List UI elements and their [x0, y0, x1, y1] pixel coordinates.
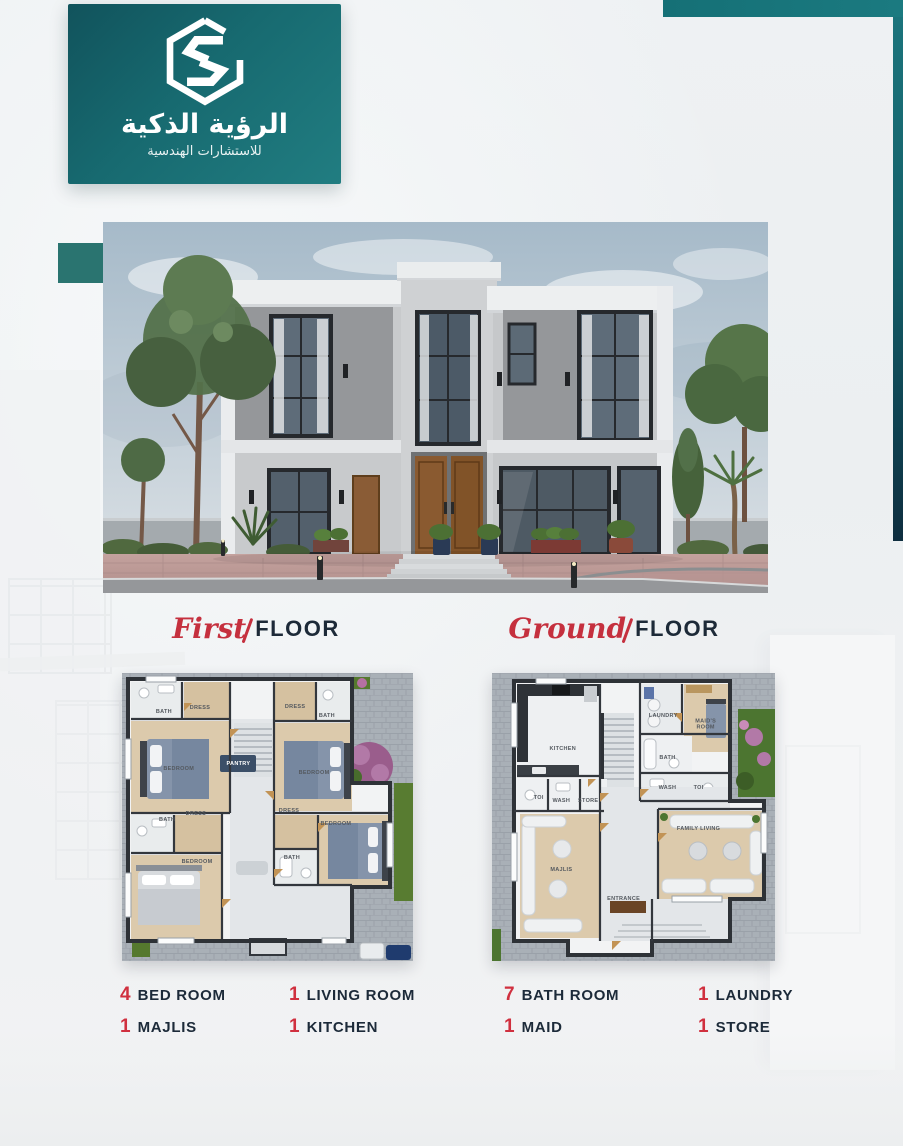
- room-label: STORE: [578, 798, 598, 804]
- stat-label: KITCHEN: [307, 1019, 379, 1036]
- stat-label: STORE: [716, 1019, 771, 1036]
- stat-label: MAJLIS: [138, 1019, 197, 1036]
- stat-count: 7: [504, 984, 515, 1006]
- stat-label: BED ROOM: [138, 987, 226, 1004]
- first-floor-title: FirstFLOOR: [106, 612, 406, 645]
- room-label: TOI: [534, 795, 544, 801]
- stat-store: 1 STORE: [698, 1016, 798, 1038]
- room-label: BEDROOM: [299, 770, 330, 776]
- first-floor-plan: BATH DRESS BEDROOM DRESS BATH BEDROOM PA…: [122, 673, 413, 961]
- hexagon-s-logo-icon: [153, 14, 257, 108]
- room-label: LAUNDRY: [649, 713, 678, 719]
- ground-floor-script: Ground: [508, 612, 626, 645]
- ground-floor-plan-drawing: [492, 673, 775, 961]
- top-accent-bar: [663, 0, 903, 17]
- stat-label: LAUNDRY: [716, 987, 794, 1004]
- right-accent-strip: [893, 17, 903, 541]
- summary-stats: 4 BED ROOM 1 LIVING ROOM 7 BATH ROOM 1 L…: [120, 984, 798, 1038]
- brand-subtitle-arabic: للاستشارات الهندسية: [147, 144, 261, 159]
- room-label: BEDROOM: [320, 821, 351, 827]
- stat-maid: 1 MAID: [504, 1016, 698, 1038]
- ground-floor-plan: KITCHEN LAUNDRY MAID'S ROOM BATH WASH TO…: [492, 673, 775, 961]
- room-label: WASH: [552, 798, 570, 804]
- room-label: BATH: [659, 755, 675, 761]
- stat-majlis: 1 MAJLIS: [120, 1016, 289, 1038]
- room-label: BEDROOM: [182, 859, 213, 865]
- room-label: DRESS: [285, 704, 305, 710]
- stat-count: 1: [289, 1016, 300, 1038]
- room-label: PANTRY: [226, 761, 250, 767]
- ground-floor-title: GroundFLOOR: [464, 612, 764, 645]
- room-label: MAID'S ROOM: [689, 718, 723, 731]
- stat-bedroom: 4 BED ROOM: [120, 984, 289, 1006]
- room-label: DRESS: [186, 811, 206, 817]
- stat-count: 1: [289, 984, 300, 1006]
- room-label: DRESS: [190, 705, 210, 711]
- stat-count: 1: [698, 984, 709, 1006]
- first-floor-word: FLOOR: [255, 616, 340, 641]
- room-label: BATH: [156, 709, 172, 715]
- bg-bottom-fade: [0, 1031, 903, 1146]
- room-label: WASH: [659, 785, 677, 791]
- room-label: ENTRANCE: [607, 896, 640, 902]
- ground-floor-word: FLOOR: [635, 616, 720, 641]
- room-label: FAMILY LIVING: [677, 826, 720, 832]
- stat-livingroom: 1 LIVING ROOM: [289, 984, 504, 1006]
- room-label: DRESS: [279, 808, 299, 814]
- stat-count: 4: [120, 984, 131, 1006]
- room-label: BEDROOM: [163, 766, 194, 772]
- stat-bathroom: 7 BATH ROOM: [504, 984, 698, 1006]
- left-accent-square: [58, 243, 108, 283]
- villa-render-image: [103, 222, 768, 593]
- room-label: BATH: [284, 855, 300, 861]
- stat-count: 1: [120, 1016, 131, 1038]
- room-label: KITCHEN: [549, 746, 576, 752]
- first-floor-script: First: [172, 612, 246, 645]
- room-label: TOI: [694, 785, 704, 791]
- stat-count: 1: [504, 1016, 515, 1038]
- brand-title-arabic: الرؤية الذكية: [121, 110, 288, 140]
- room-label: MAJLIS: [550, 867, 572, 873]
- room-label: BATH: [159, 817, 175, 823]
- stat-kitchen: 1 KITCHEN: [289, 1016, 504, 1038]
- room-label: BATH: [319, 713, 335, 719]
- stat-label: MAID: [522, 1019, 563, 1036]
- flyer-page: الرؤية الذكية للاستشارات الهندسية: [0, 0, 903, 1146]
- stat-count: 1: [698, 1016, 709, 1038]
- brand-logo-card: الرؤية الذكية للاستشارات الهندسية: [68, 4, 341, 184]
- bg-door-outline: [785, 745, 861, 934]
- stat-label: LIVING ROOM: [307, 987, 416, 1004]
- stat-label: BATH ROOM: [522, 987, 620, 1004]
- stat-laundry: 1 LAUNDRY: [698, 984, 798, 1006]
